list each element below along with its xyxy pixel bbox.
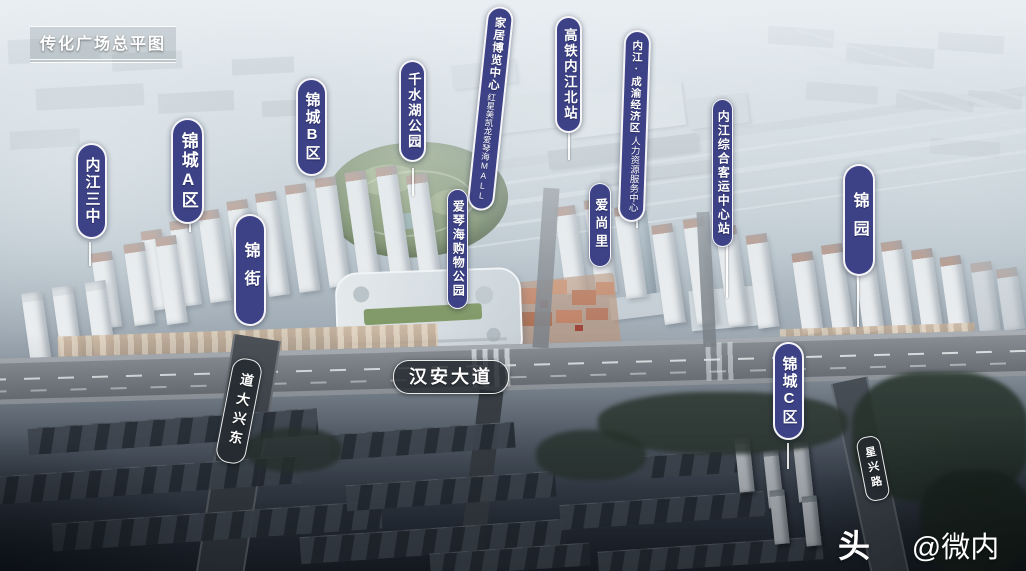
label-aishangli: 爱尚里 <box>589 183 611 267</box>
label-jincheng-c-zone: 锦城C区 <box>773 342 804 440</box>
label-home-expo-sub: 红星美凯龙爱琴海MALL <box>476 93 497 201</box>
page-title: 传化广场总平图 <box>30 26 176 63</box>
label-aegean-shopping-park: 爱琴海购物公园 <box>447 189 468 309</box>
label-home-expo-center: 家居博览中心红星美凯龙爱琴海MALL <box>466 5 514 212</box>
road-label-dongxing-avenue: 道大兴东 <box>214 356 264 466</box>
label-jin-street: 锦街 <box>234 214 266 326</box>
label-jinyuan: 锦园 <box>843 164 875 276</box>
label-jincheng-a-zone: 锦城A区 <box>171 118 204 224</box>
pointer-line <box>787 443 789 469</box>
annotation-layer: 内江三中 锦城A区 锦街 锦城B区 千水湖公园 家居博览中心红星美凯龙爱琴海MA… <box>0 0 1026 571</box>
label-neijiang-no3-middle-school: 内江三中 <box>76 143 107 239</box>
watermark-handle: @微内江 <box>912 524 1026 571</box>
watermark-brand: 头条 <box>838 521 903 571</box>
label-jincheng-b-zone: 锦城B区 <box>296 78 327 176</box>
label-comprehensive-transit-hub: 内江综合客运中心站 <box>712 99 733 247</box>
label-qianshuihu-park: 千水湖公园 <box>399 60 426 162</box>
label-home-expo-main: 家居博览中心 <box>486 16 506 92</box>
watermark: 头条 @微内江 <box>838 521 1026 571</box>
pointer-line <box>89 242 91 266</box>
label-hr-center-main: 内江·成渝经济区 <box>628 40 643 134</box>
label-hsr-neijiang-north-station: 高铁内江北站 <box>555 16 582 133</box>
pointer-line <box>412 168 414 196</box>
label-hr-center-sub: 人力资源服务中心 <box>626 135 639 211</box>
label-hr-service-center: 内江·成渝经济区人力资源服务中心 <box>618 30 651 222</box>
masterplan-screenshot: 内江三中 锦城A区 锦街 锦城B区 千水湖公园 家居博览中心红星美凯龙爱琴海MA… <box>0 0 1026 571</box>
road-label-xingxing-road: 星兴路 <box>855 434 891 502</box>
road-label-hanan-avenue: 汉安大道 <box>393 360 509 394</box>
